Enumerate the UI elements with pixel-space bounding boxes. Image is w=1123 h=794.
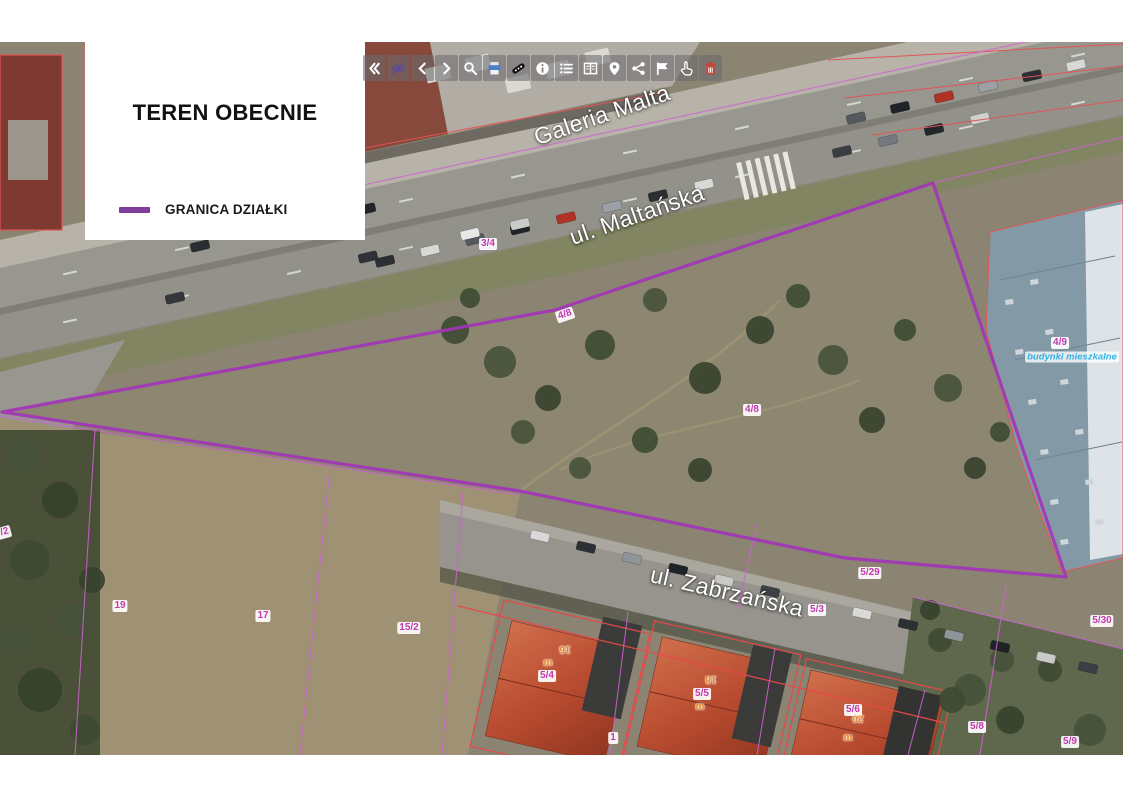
- legend-panel: TEREN OBECNIE GRANICA DZIAŁKI: [85, 42, 365, 240]
- legend-title: TEREN OBECNIE: [85, 42, 365, 126]
- collapse-panel-button[interactable]: [363, 55, 386, 81]
- list-icon: [559, 61, 574, 76]
- delete-button[interactable]: [699, 55, 722, 81]
- previous-view-button[interactable]: [411, 55, 434, 81]
- chevron-left-icon: [415, 61, 430, 76]
- layer-list-button[interactable]: [555, 55, 578, 81]
- eye-slash-icon: [391, 61, 406, 76]
- locate-button[interactable]: [603, 55, 626, 81]
- app-window: Galeria Maltaul. Maltańskaul. Zabrzańska…: [0, 0, 1123, 794]
- measure-tape-icon: [511, 61, 526, 76]
- pointer-select-button[interactable]: [675, 55, 698, 81]
- angle-double-left-icon: [367, 61, 382, 76]
- legend-item-granica-dzialki: GRANICA DZIAŁKI: [119, 202, 288, 217]
- toggle-layer-visibility-button[interactable]: [387, 55, 410, 81]
- trash-icon: [703, 61, 718, 76]
- hand-pointer-icon: [679, 61, 694, 76]
- search-icon: [463, 61, 478, 76]
- attribute-table-button[interactable]: [579, 55, 602, 81]
- chevron-right-icon: [439, 61, 454, 76]
- legend-item-label: GRANICA DZIAŁKI: [165, 202, 288, 217]
- columns-icon: [583, 61, 598, 76]
- flag-icon: [655, 61, 670, 76]
- print-button[interactable]: [483, 55, 506, 81]
- search-button[interactable]: [459, 55, 482, 81]
- print-icon: [487, 61, 502, 76]
- share-button[interactable]: [627, 55, 650, 81]
- info-button[interactable]: [531, 55, 554, 81]
- next-view-button[interactable]: [435, 55, 458, 81]
- measure-button[interactable]: [507, 55, 530, 81]
- map-marker-icon: [607, 61, 622, 76]
- share-nodes-icon: [631, 61, 646, 76]
- boundary-line-swatch: [119, 207, 150, 213]
- map-toolbar: [363, 55, 722, 81]
- info-circle-icon: [535, 61, 550, 76]
- select-area-button[interactable]: [651, 55, 674, 81]
